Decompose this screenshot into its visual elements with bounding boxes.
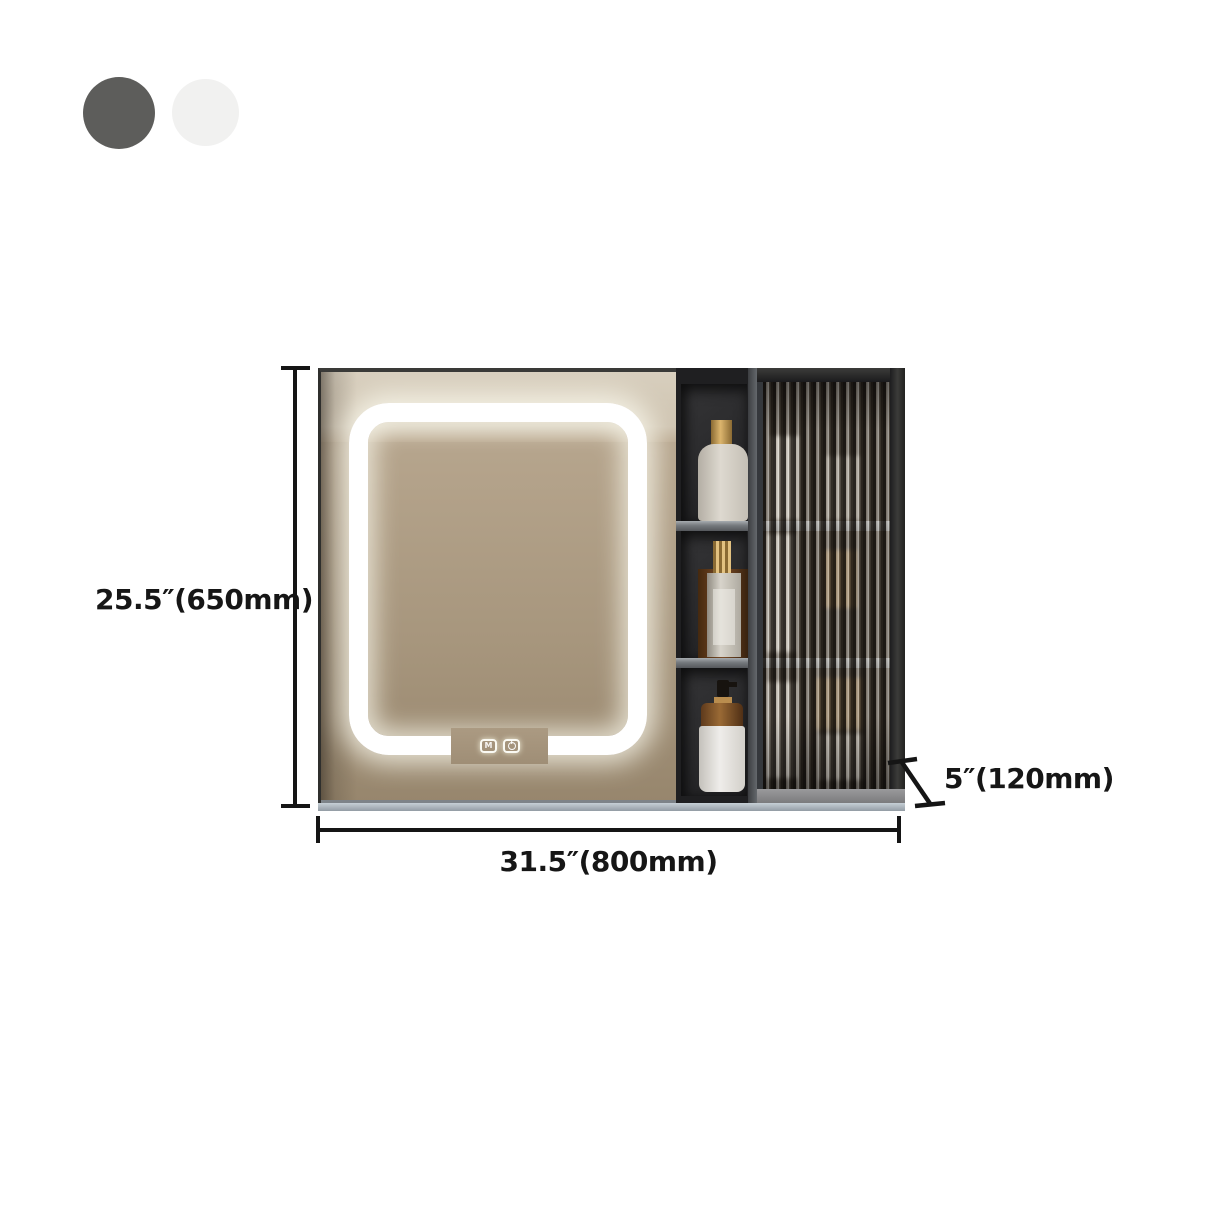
shelf-compartment-bottom	[681, 668, 747, 796]
perfume-bottle-label	[713, 589, 735, 645]
led-ring-gap	[451, 728, 548, 764]
cabinet-bottom-rim	[318, 803, 905, 811]
glass-door-top-frame	[757, 368, 905, 382]
pump-bottle-icon	[699, 726, 745, 792]
fluted-glass-door	[757, 368, 905, 803]
shelf-side-wall	[748, 368, 757, 803]
height-dimension-cap-top	[281, 366, 310, 370]
color-swatch-white[interactable]	[172, 79, 239, 146]
cosmetic-bottle-cap-icon	[711, 420, 732, 446]
pump-bottle-jar	[701, 703, 743, 728]
shelf-compartment-middle	[681, 531, 747, 658]
light-mode-touch-icon: M	[480, 739, 497, 753]
product-page: M	[0, 0, 1214, 1214]
mirror-door: M	[318, 368, 676, 803]
width-dimension-cap-left	[316, 816, 320, 843]
pump-bottle-nozzle	[726, 682, 737, 687]
shelf-compartment-top	[681, 384, 747, 521]
width-dimension-cap-right	[897, 816, 901, 843]
fluted-glass-panel	[763, 382, 890, 789]
color-swatch-dark-gray[interactable]	[83, 77, 155, 149]
width-dimension-label: 31.5″(800mm)	[316, 845, 901, 879]
shelf-divider	[676, 658, 757, 668]
glass-door-right-frame	[890, 368, 905, 803]
open-shelf-column	[676, 368, 757, 803]
led-light-ring-icon	[349, 403, 647, 755]
mirror-cabinet-image: M	[318, 368, 905, 811]
height-dimension-label: 25.5″(650mm)	[95, 583, 283, 617]
height-dimension-cap-bottom	[281, 804, 310, 808]
glass-door-bottom-frame	[757, 789, 905, 803]
perfume-bottle-cap-icon	[713, 541, 731, 573]
width-dimension-line	[316, 828, 901, 832]
cosmetic-bottle-icon	[698, 444, 748, 521]
shelf-divider	[676, 521, 757, 531]
power-glyph	[508, 742, 516, 750]
depth-dimension-label: 5″(120mm)	[944, 762, 1114, 796]
power-touch-icon	[503, 739, 520, 753]
light-mode-glyph: M	[485, 742, 493, 750]
glass-sheen	[763, 382, 890, 789]
